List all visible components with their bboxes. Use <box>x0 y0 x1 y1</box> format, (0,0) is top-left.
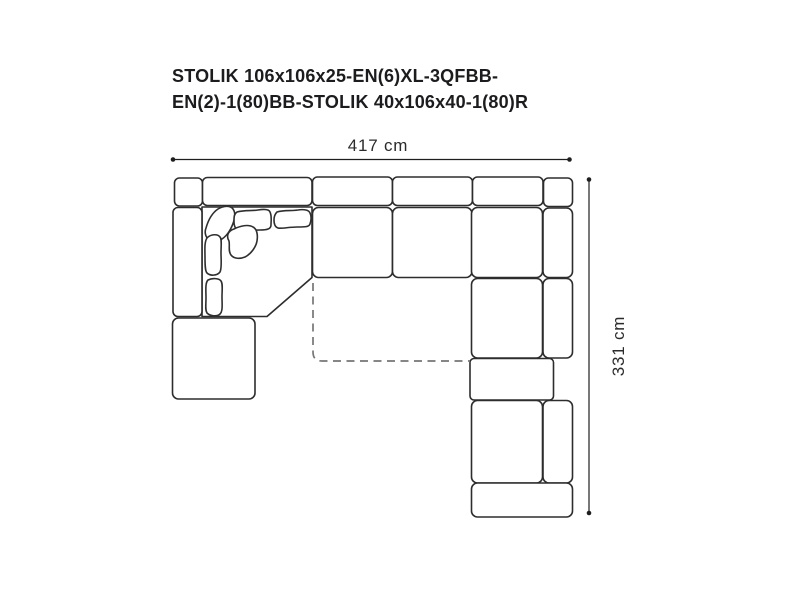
right-armrest-mid <box>543 279 573 359</box>
left-armrest <box>173 208 202 317</box>
backrest-3 <box>473 177 544 206</box>
side-table-left <box>173 318 256 399</box>
backrest-1 <box>313 177 393 206</box>
bottom-cap <box>472 483 573 517</box>
ottoman-dashed-outline <box>313 283 470 361</box>
seat-1 <box>313 208 393 278</box>
chaise-seat-bottom <box>472 401 543 484</box>
height-dimension: 331 cm <box>587 177 628 515</box>
pillow-left-lower <box>206 279 223 316</box>
backrest-right-cap <box>544 178 573 207</box>
height-dimension-label: 331 cm <box>609 316 628 377</box>
diagram-page: STOLIK 106x106x25-EN(6)XL-3QFBB- EN(2)-1… <box>0 0 800 600</box>
chaise-seat-mid <box>472 279 543 359</box>
width-dimension-dot-right <box>567 157 572 162</box>
chaise-seat-top <box>472 208 543 278</box>
backrest-2 <box>393 177 473 206</box>
height-dimension-dot-top <box>587 177 592 182</box>
height-dimension-dot-bottom <box>587 511 592 516</box>
pillow-top-right <box>274 210 311 229</box>
backrest-left-cap <box>175 178 203 206</box>
seat-2 <box>393 208 473 278</box>
backrest-wide <box>203 178 313 206</box>
pillow-left-middle <box>205 235 221 275</box>
right-armrest-top <box>543 208 573 278</box>
width-dimension-label: 417 cm <box>348 136 409 155</box>
sofa-outline-group <box>173 177 573 517</box>
side-table-right <box>470 359 554 401</box>
sofa-top-view-diagram: 417 cm 331 cm <box>0 0 800 600</box>
right-armrest-bottom <box>543 401 573 484</box>
width-dimension-dot-left <box>171 157 176 162</box>
width-dimension: 417 cm <box>171 136 572 162</box>
